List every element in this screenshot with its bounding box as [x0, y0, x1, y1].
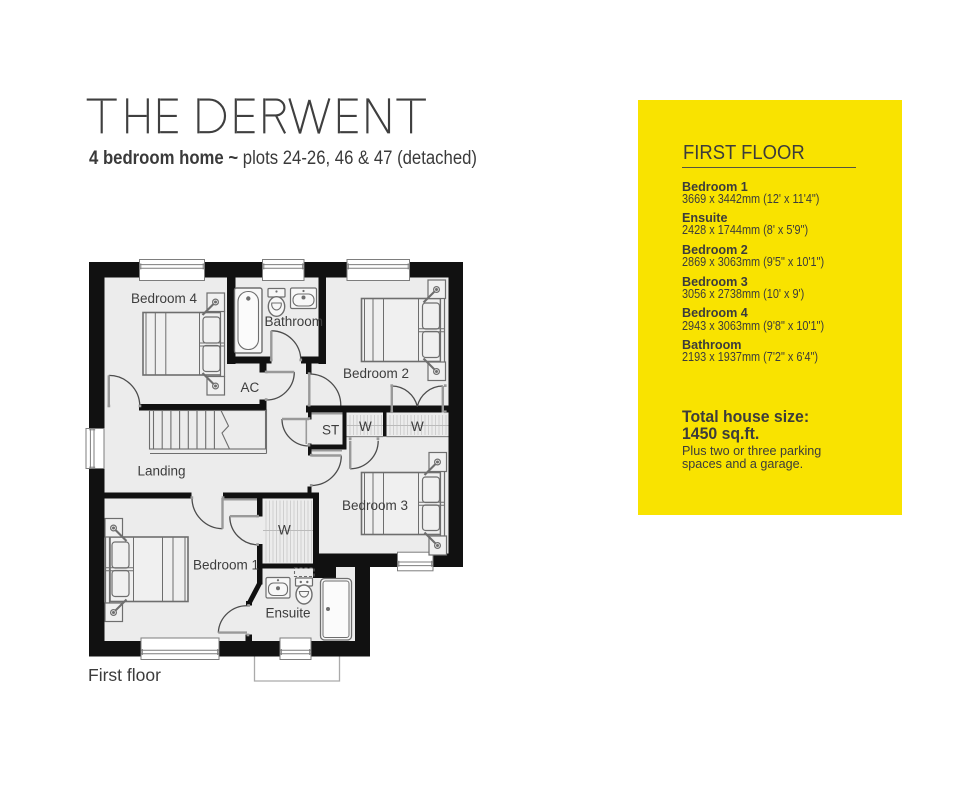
svg-text:Landing: Landing	[138, 464, 186, 479]
svg-text:Bedroom 1: Bedroom 1	[193, 558, 259, 573]
svg-text:ST: ST	[322, 423, 339, 438]
svg-text:W: W	[278, 523, 291, 538]
svg-text:W: W	[359, 419, 372, 434]
svg-text:Bedroom 4: Bedroom 4	[131, 291, 198, 306]
svg-text:Ensuite: Ensuite	[266, 606, 311, 621]
svg-text:AC: AC	[241, 380, 260, 395]
svg-text:Bedroom 3: Bedroom 3	[342, 498, 408, 513]
svg-text:W: W	[411, 419, 424, 434]
svg-text:Bedroom 2: Bedroom 2	[343, 366, 409, 381]
svg-text:Bathroom: Bathroom	[265, 314, 324, 329]
